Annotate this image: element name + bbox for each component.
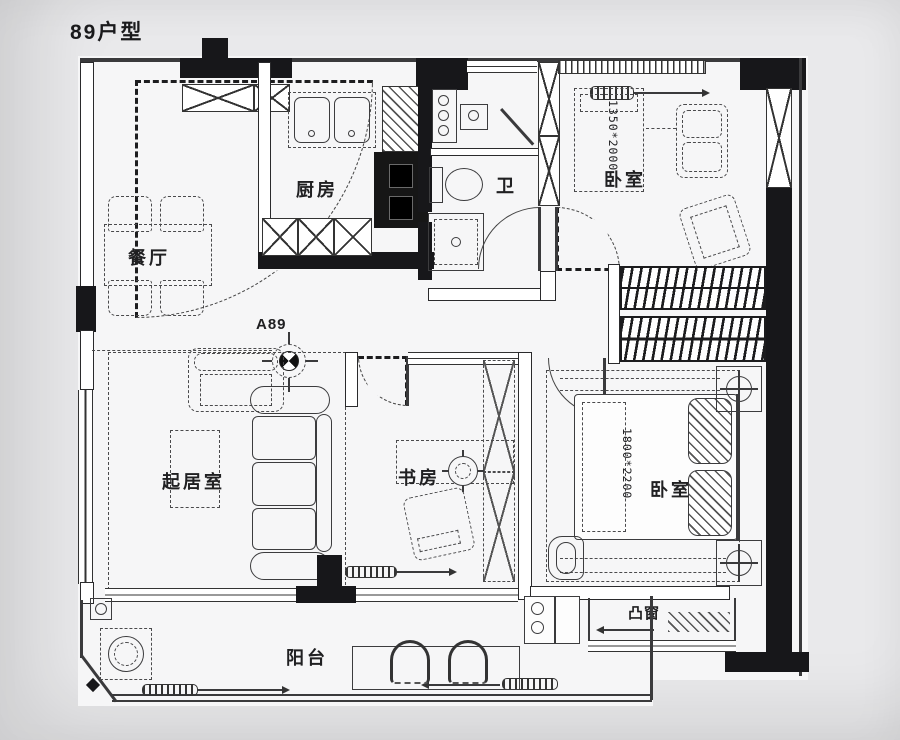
bedroom2-right-column [766,88,792,188]
dining-chair [108,280,152,316]
bath-right-wall-column [538,136,560,206]
master-runner-line [560,572,726,573]
bay-window-label: 凸窗 [628,602,660,623]
living-bottom-column [296,586,356,603]
bottom-right-column [725,652,809,672]
bay-arrow-line [602,629,654,631]
stove-burner [389,164,413,188]
balcony-bench-platform [352,646,520,690]
bath-bottom-wall [428,288,546,301]
bedroom2-door-leaf [555,207,558,271]
bedroom2-bed-dim: 1350*2000 [606,100,620,171]
master-guide-line [560,390,720,391]
balcony-radiator-arrow-icon [282,686,290,694]
entry-shoe-cabinet [182,84,254,112]
top-wall-column [180,58,292,78]
kitchen-label: 厨房 [296,176,338,202]
living-radiator-arrow-icon [449,568,457,576]
bay-arrow-icon [596,626,604,634]
master-headboard [736,394,740,540]
study-label: 书房 [398,464,440,490]
balcony-stool [448,640,488,684]
utility-divider [554,596,556,644]
living-radiator-coil [345,566,397,578]
balcony-radiator-line [198,689,282,691]
balcony-left-line [80,600,83,658]
kitchen-sink-right-drain [348,130,355,137]
living-label: 起居室 [162,468,225,494]
closet-hanging-rail-top [620,266,766,310]
left-wall-column [76,286,96,332]
armchair-back [194,353,278,371]
bath-door-post [538,207,541,271]
dining-label: 餐厅 [128,244,170,270]
dining-chair [160,196,204,232]
shower-drain [451,237,461,247]
balcony-bottom-line-2 [112,700,652,702]
bath-top-window [467,60,537,73]
bath-basin-bowl [468,110,479,121]
sofa-back [316,414,332,552]
washing-machine-drum-inner [114,642,138,666]
sofa-armrest [250,386,330,414]
living-bottom-column-stub [317,555,342,589]
bedroom2-guide-line [646,128,676,129]
utility-knob [531,621,544,634]
nightstand-lamp-cross [720,562,758,564]
kitchen-base-cabinet [262,218,298,256]
living-radiator-line [397,571,449,573]
master-pillow [688,470,732,536]
bay-window-glass [588,640,736,652]
toilet-bowl [445,168,483,201]
utility-knob [531,602,544,615]
sofa-cushion [252,462,316,506]
balcony-stool [390,640,430,684]
nightstand-lamp-cross [720,388,758,390]
toilet-tank [429,167,443,203]
living-bottom-window [105,588,299,602]
bay-hatch-marks [668,612,730,632]
kitchen-base-cabinet [298,218,334,256]
floorplan-canvas: 89户型 厨房 卫 [0,0,900,740]
study-left-wall-stub [345,352,358,407]
vanity-knob [438,125,449,136]
study-chair [402,486,476,561]
master-bed-dim: 1800*2200 [620,428,634,499]
marker-label: A89 [256,316,287,333]
master-side-chair-seat [556,542,576,574]
bedroom2-label: 卧室 [604,166,646,192]
closet-left-wall [608,264,620,364]
plan-title: 89户型 [70,16,143,46]
bath-label: 卫 [496,172,514,198]
balcony-radiator-coil [142,684,198,696]
vanity-knob [438,110,449,121]
hall-wall-stub [540,271,556,301]
study-bottom-window [356,588,518,602]
balcony-right-line [650,596,653,700]
bath-right-wall-column [538,62,560,136]
study-master-divider-wall [518,352,532,600]
dining-chair [160,280,204,316]
left-wall-mid [80,330,94,390]
bedroom2-chair-cushion [682,110,722,138]
stove-burner [389,196,413,220]
bedroom2-rail-line [634,92,702,94]
sofa-cushion [252,508,316,550]
kitchen-base-cabinet [334,218,372,256]
balcony-corner-drain-icon [95,603,107,615]
dining-chair [108,196,152,232]
bath-divider-wall [430,148,542,156]
bedroom2-top-window [558,60,706,74]
master-guide-line [560,378,720,379]
sofa-cushion [252,416,316,460]
closet-hanging-rail-bottom [620,316,766,362]
balcony-label: 阳台 [286,644,328,670]
right-outer-line [799,58,802,676]
vanity-knob [438,95,449,106]
bedroom2-rail-arrow-icon [702,89,710,97]
sofa [250,386,334,580]
top-wall-column-stub [202,38,228,62]
study-compass-inner-icon [455,463,471,479]
living-left-window [78,390,93,584]
master-runner-line [560,558,726,559]
master-label: 卧室 [650,476,692,502]
bedroom2-chair-cushion [682,142,722,172]
kitchen-sink-left-drain [308,130,315,137]
study-wardrobe [483,472,515,582]
